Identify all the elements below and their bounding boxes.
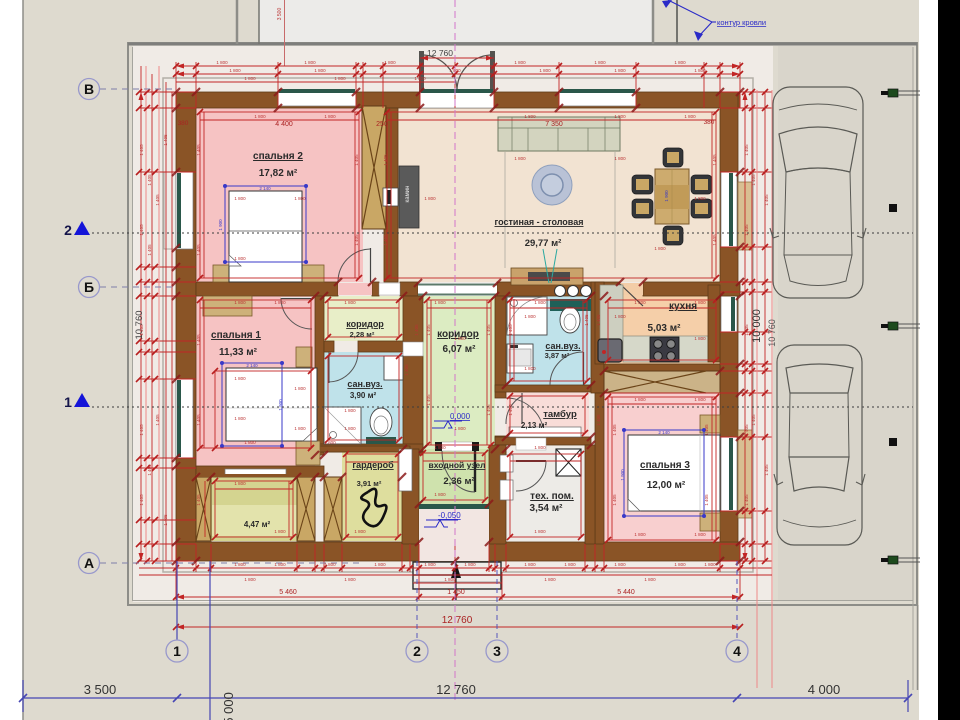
svg-text:1 800: 1 800: [374, 562, 386, 567]
svg-text:1 800: 1 800: [514, 60, 526, 65]
svg-text:1 405: 1 405: [486, 404, 491, 416]
svg-text:4 000: 4 000: [808, 682, 841, 697]
svg-text:1 405: 1 405: [426, 324, 431, 336]
svg-text:0,000: 0,000: [450, 412, 471, 421]
svg-text:1 800: 1 800: [614, 114, 626, 119]
svg-text:3,91 м²: 3,91 м²: [357, 479, 382, 488]
svg-text:1 800: 1 800: [234, 376, 246, 381]
svg-text:спальня 2: спальня 2: [253, 151, 303, 162]
svg-text:1 405: 1 405: [196, 334, 201, 346]
svg-text:1 800: 1 800: [234, 256, 246, 261]
svg-text:1 800: 1 800: [614, 314, 626, 319]
svg-text:1 800: 1 800: [244, 440, 256, 445]
svg-text:29,77 м²: 29,77 м²: [525, 238, 562, 249]
svg-text:1 405: 1 405: [155, 194, 160, 206]
svg-text:1 800: 1 800: [634, 397, 646, 402]
svg-text:тех. пом.: тех. пом.: [530, 491, 574, 502]
svg-text:1 800: 1 800: [634, 532, 646, 537]
svg-text:1 405: 1 405: [764, 464, 769, 476]
svg-text:2,36 м²: 2,36 м²: [443, 476, 474, 487]
svg-text:А: А: [84, 555, 94, 571]
svg-text:1 405: 1 405: [383, 154, 388, 166]
svg-text:2 140: 2 140: [259, 186, 271, 191]
svg-text:гардероб: гардероб: [352, 460, 394, 470]
svg-text:2,28 м²: 2,28 м²: [350, 330, 375, 339]
svg-text:1 800: 1 800: [294, 426, 306, 431]
svg-text:1 800: 1 800: [234, 481, 246, 486]
svg-text:1 405: 1 405: [712, 234, 717, 246]
svg-text:1 800: 1 800: [524, 114, 536, 119]
svg-text:камин: камин: [405, 186, 411, 203]
svg-text:1 900: 1 900: [620, 469, 625, 481]
svg-text:12,00 м²: 12,00 м²: [647, 480, 686, 491]
svg-text:1 800: 1 800: [534, 529, 546, 534]
svg-text:коридор: коридор: [346, 319, 384, 329]
svg-text:1 800: 1 800: [514, 156, 526, 161]
svg-text:4 400: 4 400: [275, 121, 293, 128]
svg-text:1 800: 1 800: [524, 562, 536, 567]
svg-text:1 800: 1 800: [694, 196, 706, 201]
svg-text:1 800: 1 800: [614, 156, 626, 161]
svg-text:1 405: 1 405: [147, 244, 152, 256]
svg-text:1 405: 1 405: [139, 224, 144, 236]
svg-text:1 800: 1 800: [216, 60, 228, 65]
svg-text:1 800: 1 800: [324, 114, 336, 119]
svg-text:3,87 м²: 3,87 м²: [545, 351, 570, 360]
svg-text:12 760: 12 760: [436, 682, 476, 697]
svg-text:1 800: 1 800: [434, 492, 446, 497]
svg-text:1 800: 1 800: [334, 76, 346, 81]
svg-text:1 800: 1 800: [704, 562, 716, 567]
svg-text:1 800: 1 800: [274, 300, 286, 305]
svg-text:1 405: 1 405: [196, 244, 201, 256]
svg-text:гостиная - столовая: гостиная - столовая: [495, 217, 584, 227]
svg-text:1 800: 1 800: [694, 397, 706, 402]
svg-text:1 405: 1 405: [744, 424, 749, 436]
svg-text:1 800: 1 800: [234, 300, 246, 305]
svg-text:1 800: 1 800: [424, 562, 436, 567]
svg-text:1 405: 1 405: [426, 394, 431, 406]
svg-text:7 350: 7 350: [545, 121, 563, 128]
svg-text:1 800: 1 800: [544, 577, 556, 582]
svg-text:1 800: 1 800: [344, 426, 356, 431]
svg-text:1 405: 1 405: [764, 194, 769, 206]
svg-text:3 500: 3 500: [84, 682, 117, 697]
svg-text:3: 3: [493, 643, 501, 659]
svg-text:1 405: 1 405: [163, 514, 168, 526]
svg-text:1 405: 1 405: [414, 324, 419, 336]
svg-text:1 405: 1 405: [383, 234, 388, 246]
svg-text:1 800: 1 800: [444, 577, 456, 582]
svg-text:1 800: 1 800: [454, 336, 466, 341]
svg-text:1 800: 1 800: [694, 68, 706, 73]
svg-text:1 800: 1 800: [634, 300, 646, 305]
svg-text:1 405: 1 405: [744, 224, 749, 236]
svg-text:спальня 3: спальня 3: [640, 460, 690, 471]
svg-text:1 405: 1 405: [139, 494, 144, 506]
svg-text:1 800: 1 800: [344, 300, 356, 305]
svg-text:1 800: 1 800: [244, 577, 256, 582]
svg-text:тамбур: тамбур: [543, 409, 577, 420]
svg-text:1 405: 1 405: [147, 174, 152, 186]
svg-text:1 800: 1 800: [539, 68, 551, 73]
svg-text:380: 380: [704, 119, 715, 126]
svg-text:1 405: 1 405: [508, 324, 513, 336]
svg-text:1 800: 1 800: [524, 314, 536, 319]
svg-text:1 800: 1 800: [424, 196, 436, 201]
svg-text:1 800: 1 800: [594, 60, 606, 65]
svg-text:1 405: 1 405: [712, 154, 717, 166]
svg-text:1 405: 1 405: [751, 174, 756, 186]
svg-text:1 800: 1 800: [644, 577, 656, 582]
svg-text:1 405: 1 405: [612, 424, 617, 436]
svg-text:11,33 м²: 11,33 м²: [219, 347, 258, 358]
svg-text:2: 2: [64, 222, 72, 238]
svg-text:спальня 1: спальня 1: [211, 330, 261, 341]
svg-text:1 800: 1 800: [314, 68, 326, 73]
svg-text:1 405: 1 405: [751, 414, 756, 426]
svg-text:1 900: 1 900: [278, 399, 283, 411]
svg-text:1 800: 1 800: [534, 445, 546, 450]
svg-text:1 800: 1 800: [534, 300, 546, 305]
svg-text:1 405: 1 405: [404, 364, 409, 376]
svg-text:17,82 м²: 17,82 м²: [259, 168, 298, 179]
svg-text:1 800: 1 800: [654, 246, 666, 251]
svg-text:6,07 м²: 6,07 м²: [443, 344, 477, 355]
svg-text:1 405: 1 405: [196, 144, 201, 156]
svg-text:3 500: 3 500: [277, 8, 283, 21]
svg-text:контур кровли: контур кровли: [717, 18, 766, 27]
svg-text:15 000: 15 000: [221, 692, 236, 720]
svg-text:1 800: 1 800: [694, 300, 706, 305]
svg-text:1 800: 1 800: [229, 68, 241, 73]
svg-text:3,54 м²: 3,54 м²: [530, 503, 564, 514]
svg-text:1 405: 1 405: [486, 324, 491, 336]
svg-text:1 405: 1 405: [354, 234, 359, 246]
svg-text:4,47 м²: 4,47 м²: [244, 520, 271, 529]
svg-text:1 800: 1 800: [449, 68, 461, 73]
svg-text:1 405: 1 405: [704, 494, 709, 506]
svg-text:1 405: 1 405: [596, 314, 601, 326]
svg-text:1 405: 1 405: [155, 414, 160, 426]
svg-text:2: 2: [413, 643, 421, 659]
svg-text:10 000: 10 000: [751, 309, 763, 343]
svg-text:1 800: 1 800: [674, 60, 686, 65]
svg-text:1 800: 1 800: [254, 114, 266, 119]
svg-text:1 800: 1 800: [354, 529, 366, 534]
svg-text:1 800: 1 800: [564, 562, 576, 567]
svg-text:1 800: 1 800: [234, 196, 246, 201]
svg-text:1 800: 1 800: [434, 445, 446, 450]
svg-text:1 405: 1 405: [612, 494, 617, 506]
svg-text:1 405: 1 405: [147, 464, 152, 476]
svg-text:250: 250: [376, 121, 388, 128]
svg-text:1 900: 1 900: [218, 219, 223, 231]
svg-text:1 405: 1 405: [596, 414, 601, 426]
svg-text:1 800: 1 800: [684, 114, 696, 119]
svg-text:10 760: 10 760: [767, 319, 777, 347]
svg-text:1 800: 1 800: [694, 532, 706, 537]
svg-text:1 800: 1 800: [234, 416, 246, 421]
svg-text:1 450: 1 450: [447, 589, 465, 596]
svg-text:380: 380: [178, 120, 189, 127]
svg-text:сан.вуз.: сан.вуз.: [347, 379, 382, 389]
svg-text:5 440: 5 440: [617, 589, 635, 596]
svg-text:1 800: 1 800: [274, 562, 286, 567]
svg-text:1 800: 1 800: [414, 76, 426, 81]
svg-text:1 800: 1 800: [304, 60, 316, 65]
svg-text:1 800: 1 800: [234, 562, 246, 567]
svg-text:-0,050: -0,050: [438, 511, 461, 520]
svg-text:1 405: 1 405: [584, 314, 589, 326]
svg-text:1 405: 1 405: [744, 324, 749, 336]
svg-text:1 405: 1 405: [354, 154, 359, 166]
svg-text:1 800: 1 800: [524, 366, 536, 371]
svg-text:12 760: 12 760: [427, 48, 453, 58]
svg-text:1 800: 1 800: [344, 577, 356, 582]
svg-text:1 800: 1 800: [614, 68, 626, 73]
svg-text:1 405: 1 405: [139, 424, 144, 436]
svg-text:5 460: 5 460: [279, 589, 297, 596]
svg-text:1 405: 1 405: [744, 144, 749, 156]
svg-text:1 800: 1 800: [674, 562, 686, 567]
svg-text:3,90 м²: 3,90 м²: [350, 391, 377, 400]
svg-text:В: В: [84, 81, 94, 97]
svg-text:1 800: 1 800: [434, 300, 446, 305]
svg-text:1 800: 1 800: [294, 196, 306, 201]
svg-text:1 800: 1 800: [694, 336, 706, 341]
svg-text:1 900: 1 900: [664, 190, 669, 202]
svg-text:1 800: 1 800: [614, 562, 626, 567]
svg-text:входной узел: входной узел: [429, 460, 486, 470]
svg-text:5,03 м²: 5,03 м²: [648, 323, 682, 334]
svg-text:1: 1: [64, 394, 72, 410]
svg-text:1 405: 1 405: [508, 404, 513, 416]
svg-text:1 405: 1 405: [139, 144, 144, 156]
svg-text:1 800: 1 800: [244, 76, 256, 81]
svg-text:1 800: 1 800: [344, 408, 356, 413]
svg-text:12 760: 12 760: [442, 615, 473, 626]
svg-text:2,13 м²: 2,13 м²: [521, 421, 548, 430]
svg-text:2 140: 2 140: [658, 430, 670, 435]
svg-text:кухня: кухня: [669, 301, 697, 312]
svg-text:1 800: 1 800: [324, 562, 336, 567]
svg-text:1 405: 1 405: [196, 414, 201, 426]
svg-text:1 800: 1 800: [464, 562, 476, 567]
svg-text:1 405: 1 405: [744, 494, 749, 506]
svg-text:1 405: 1 405: [196, 494, 201, 506]
svg-text:2 140: 2 140: [246, 363, 258, 368]
svg-text:4: 4: [733, 643, 741, 659]
svg-text:1 800: 1 800: [294, 386, 306, 391]
svg-text:Б: Б: [84, 279, 94, 295]
svg-text:сан.вуз.: сан.вуз.: [545, 341, 580, 351]
svg-text:1 800: 1 800: [324, 440, 336, 445]
svg-text:1 405: 1 405: [139, 324, 144, 336]
svg-text:1 405: 1 405: [704, 424, 709, 436]
svg-text:1 800: 1 800: [384, 60, 396, 65]
svg-text:1: 1: [173, 643, 181, 659]
svg-text:1 800: 1 800: [454, 426, 466, 431]
svg-text:1 800: 1 800: [274, 529, 286, 534]
svg-text:1 405: 1 405: [163, 134, 168, 146]
